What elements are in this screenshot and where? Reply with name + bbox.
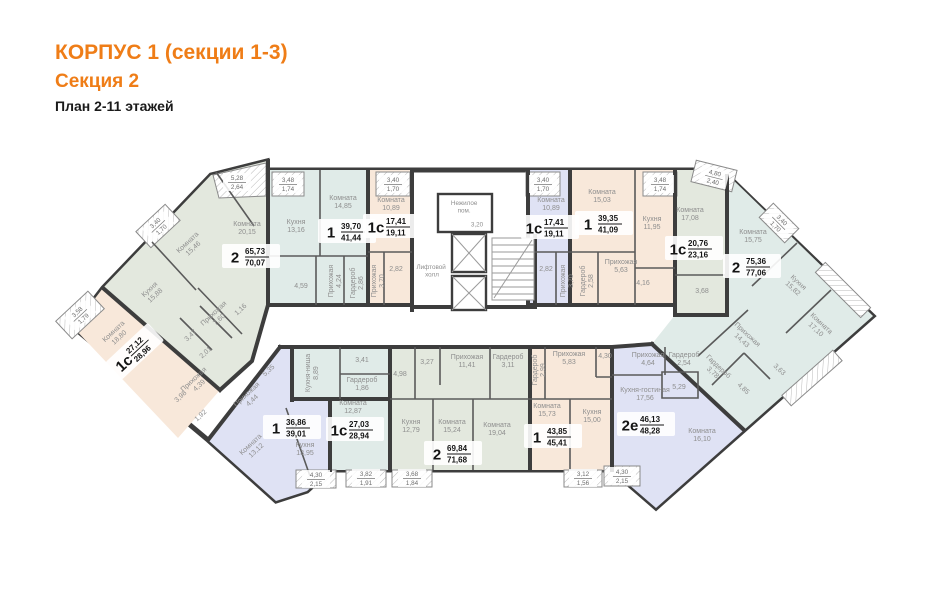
svg-text:48,28: 48,28 (640, 427, 661, 436)
svg-text:19,11: 19,11 (544, 230, 564, 239)
svg-text:23,16: 23,16 (688, 251, 709, 260)
room-label: 5,29 (672, 384, 686, 391)
svg-text:1,70: 1,70 (387, 186, 400, 193)
floor-plan-page: КОРПУС 1 (секции 1-3) Секция 2 План 2-11… (0, 0, 941, 600)
svg-text:43,85: 43,85 (547, 427, 568, 436)
svg-text:2: 2 (231, 250, 239, 267)
room-label: 3,27 (420, 359, 434, 366)
room-label: 4,16 (636, 280, 650, 287)
svg-text:1,74: 1,74 (282, 186, 295, 193)
svg-text:39,70: 39,70 (341, 222, 362, 231)
svg-text:70,07: 70,07 (245, 259, 266, 268)
room-label: Кухня13,16 (287, 219, 306, 234)
balcony-label: 3,821,91 (352, 469, 380, 487)
svg-text:2,15: 2,15 (310, 481, 323, 488)
apartment-badge: 265,7370,07 (222, 244, 280, 268)
svg-text:39,01: 39,01 (286, 430, 307, 439)
balcony-label: 3,681,84 (398, 469, 426, 487)
apartment-badge: 136,8639,01 (263, 415, 321, 439)
svg-text:69,84: 69,84 (447, 444, 468, 453)
svg-text:3,12: 3,12 (577, 471, 590, 478)
svg-text:1: 1 (533, 430, 541, 447)
svg-text:17,41: 17,41 (544, 218, 565, 227)
room-label: 3,68 (695, 288, 709, 295)
svg-text:1,74: 1,74 (654, 186, 667, 193)
svg-text:71,68: 71,68 (447, 456, 468, 465)
svg-text:3,82: 3,82 (360, 471, 373, 478)
svg-text:36,86: 36,86 (286, 418, 307, 427)
svg-text:1с: 1с (331, 423, 348, 440)
svg-text:39,35: 39,35 (598, 214, 619, 223)
svg-text:19,11: 19,11 (386, 229, 406, 238)
svg-text:20,76: 20,76 (688, 239, 709, 248)
svg-text:3,68: 3,68 (406, 471, 419, 478)
svg-text:3,48: 3,48 (282, 177, 295, 184)
apartment-badge: 1с27,0328,94 (326, 417, 384, 441)
apartment-badge: 143,8545,41 (524, 424, 582, 448)
room-label: Кухня12,79 (402, 419, 421, 434)
svg-text:4,30: 4,30 (616, 469, 629, 476)
balcony-label: 3,401,70 (529, 175, 557, 193)
room-label: Кухня15,00 (583, 409, 602, 424)
room-label: Кухня11,95 (643, 216, 662, 231)
svg-text:65,73: 65,73 (245, 247, 266, 256)
floor-plan-canvas: Нежилое пом. 3,20 Лифтовой холл Комната2… (0, 0, 941, 600)
svg-text:1,84: 1,84 (406, 480, 419, 487)
svg-text:3,40: 3,40 (387, 177, 400, 184)
svg-text:1с: 1с (368, 220, 385, 237)
apartment-badge: 1с17,4119,11 (363, 214, 421, 238)
balcony-label: 3,401,70 (379, 175, 407, 193)
balcony-label: 3,481,74 (646, 175, 674, 193)
apartment-badge: 1с20,7623,16 (665, 236, 723, 260)
room-label: 2,82 (389, 266, 403, 273)
balcony-label: 3,121,56 (569, 469, 597, 487)
svg-text:45,41: 45,41 (547, 439, 568, 448)
room-label: Кухня13,95 (296, 442, 315, 457)
svg-text:1: 1 (272, 421, 280, 438)
svg-text:5,28: 5,28 (231, 175, 244, 182)
svg-text:75,36: 75,36 (746, 257, 767, 266)
svg-text:1,56: 1,56 (577, 480, 590, 487)
apartment-badge: 139,3541,09 (575, 211, 633, 235)
apartment-badge: 1с17,4119,11 (521, 215, 579, 239)
svg-text:1,91: 1,91 (360, 480, 373, 487)
svg-text:4,30: 4,30 (310, 472, 323, 479)
room-label: 4,59 (294, 283, 308, 290)
svg-text:2,64: 2,64 (231, 184, 244, 191)
room-label: 2,82 (539, 266, 553, 273)
svg-text:41,09: 41,09 (598, 226, 619, 235)
svg-text:28,94: 28,94 (349, 432, 370, 441)
balcony-label: 4,302,15 (302, 470, 330, 488)
svg-text:2,15: 2,15 (616, 478, 629, 485)
svg-text:77,06: 77,06 (746, 269, 767, 278)
room-label: 4,98 (393, 371, 407, 378)
stairs-icon (492, 238, 534, 300)
svg-text:1,70: 1,70 (537, 186, 550, 193)
balcony-label: 5,282,64 (223, 173, 251, 191)
svg-text:2: 2 (732, 260, 740, 277)
svg-text:1с: 1с (670, 242, 687, 259)
room-label: 3,41 (355, 357, 369, 364)
svg-text:41,44: 41,44 (341, 234, 362, 243)
room-label: 4,30 (598, 353, 612, 360)
svg-text:3,40: 3,40 (537, 177, 550, 184)
svg-text:17,41: 17,41 (386, 217, 407, 226)
svg-text:27,03: 27,03 (349, 420, 370, 429)
balcony-label: 4,302,15 (608, 467, 636, 485)
svg-text:46,13: 46,13 (640, 415, 661, 424)
svg-text:2е: 2е (622, 418, 639, 435)
svg-text:1с: 1с (526, 221, 543, 238)
svg-text:1: 1 (327, 225, 335, 242)
apartment-badge: 269,8471,68 (424, 441, 482, 465)
apartment-badge: 275,3677,06 (723, 254, 781, 278)
svg-text:1: 1 (584, 217, 592, 234)
svg-text:2: 2 (433, 447, 441, 464)
apartment-badge: 2е46,1348,28 (617, 412, 675, 436)
balcony-label: 3,481,74 (274, 175, 302, 193)
svg-text:3,48: 3,48 (654, 177, 667, 184)
